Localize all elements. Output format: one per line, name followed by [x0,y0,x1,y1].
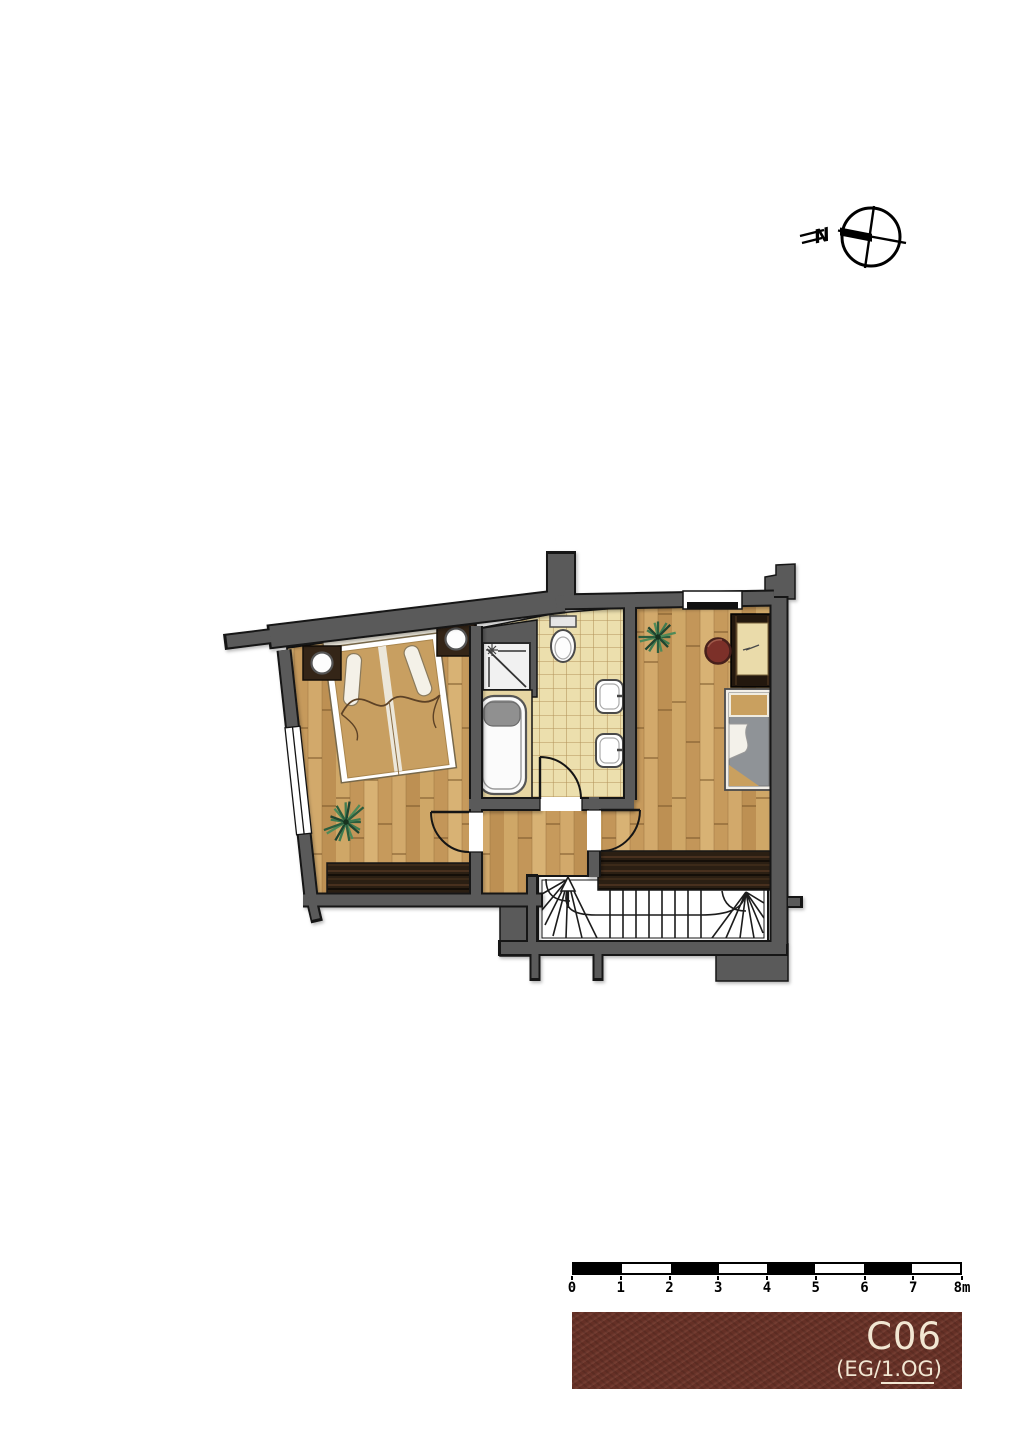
title-box: C06 (EG/1.OG) [572,1312,962,1389]
sink-upper [596,680,625,713]
scale-label: 4 [763,1280,771,1296]
scale-segment [622,1264,670,1273]
scale-label: 1 [617,1280,625,1296]
scale-segment [767,1264,815,1273]
lamp-left-icon [312,653,333,674]
scale-label: 0 [568,1280,576,1296]
floor-prefix: (EG/ [836,1357,881,1381]
gallery-edge-left [327,863,474,894]
scale-label: 8m [954,1280,971,1296]
scale-segment [719,1264,767,1273]
scale-bar [572,1262,962,1275]
scale-label: 2 [665,1280,673,1296]
floor-plan-sheet: N 012345678m C06 (EG/1.OG) [0,0,1018,1440]
single-bed [725,689,773,790]
unit-label: C06 [572,1317,942,1357]
scale-segment [864,1264,912,1273]
scale-bar-labels: 012345678m [572,1276,962,1298]
scale-label: 7 [909,1280,917,1296]
nightstand-left [303,646,341,680]
shower [476,620,537,697]
desk [731,614,773,687]
stool [706,639,731,664]
toilet [550,616,576,662]
floor-suffix: ) [934,1357,942,1381]
sink-lower [596,734,625,767]
scale-label: 3 [714,1280,722,1296]
gallery-edge-right [598,851,772,890]
window-top [683,591,742,609]
scale-label: 5 [812,1280,820,1296]
scale-segment [912,1264,960,1273]
floor-plan-drawing: N [0,0,1018,1440]
north-arrow: N [800,206,906,268]
north-label: N [812,224,832,249]
floor-current: 1.OG [881,1357,934,1384]
scale-segment [671,1264,719,1273]
scale-segment [815,1264,863,1273]
scale-segment [574,1264,622,1273]
lamp-right-icon [446,629,467,650]
floor-label: (EG/1.OG) [572,1357,942,1382]
scale-label: 6 [860,1280,868,1296]
